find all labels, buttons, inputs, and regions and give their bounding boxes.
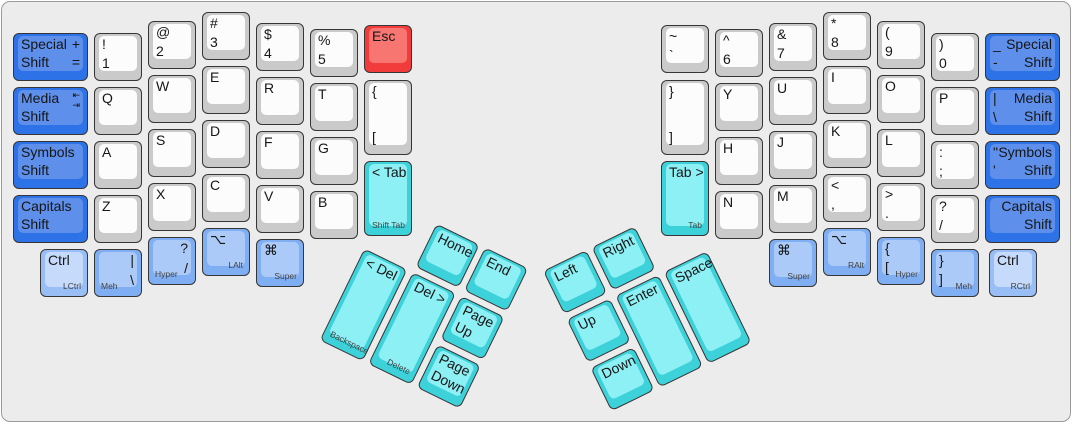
key-j[interactable]: J bbox=[769, 131, 817, 179]
hyper-right[interactable]: {[Hyper bbox=[877, 237, 925, 285]
key-cap: $4 bbox=[261, 26, 299, 61]
key-cap: Special Shift+ = bbox=[18, 36, 83, 71]
key-legend: Capitals Shift bbox=[1001, 198, 1052, 233]
key-legend: F bbox=[264, 134, 273, 152]
key-legend: V bbox=[264, 188, 273, 206]
key-legend: Backspace bbox=[328, 329, 370, 357]
key-legend: H bbox=[723, 140, 733, 158]
key-cap: {[Hyper bbox=[882, 240, 920, 275]
key-cap: %5 bbox=[315, 32, 353, 67]
key-legend: > bbox=[885, 186, 893, 204]
key-legend: Media Shift bbox=[1014, 90, 1052, 125]
key-4[interactable]: $4 bbox=[256, 23, 304, 71]
key-cap: Right bbox=[597, 231, 646, 279]
key-legend: Super bbox=[787, 271, 810, 282]
key-cap: E bbox=[207, 69, 245, 104]
key-k[interactable]: K bbox=[823, 120, 871, 168]
key-cap: J bbox=[774, 134, 812, 169]
key-legend: Tab > bbox=[669, 164, 704, 182]
key-legend: } bbox=[939, 252, 944, 270]
key-legend: C bbox=[210, 177, 220, 195]
key-legend: Up bbox=[575, 311, 599, 335]
key-legend: + = bbox=[72, 36, 80, 71]
key-cap: B bbox=[315, 194, 353, 229]
key-legend: < bbox=[831, 177, 839, 195]
key-legend: Delete bbox=[385, 357, 412, 377]
key-legend: Ctrl bbox=[48, 252, 70, 270]
key-cap: *8 bbox=[828, 15, 866, 50]
key-legend: ~ bbox=[669, 28, 677, 46]
key-legend: [ bbox=[885, 259, 889, 277]
key-9[interactable]: (9 bbox=[877, 21, 925, 69]
keyboard-panel: HomeEnd< DelBackspaceDel >DeletePage UpP… bbox=[1, 1, 1071, 422]
key-legend: Home bbox=[435, 230, 476, 262]
key-legend: 5 bbox=[318, 51, 326, 69]
key-cap: G bbox=[315, 140, 353, 175]
rbrace-key[interactable]: }] bbox=[661, 80, 709, 155]
key-legend: Ctrl bbox=[997, 252, 1019, 270]
key-cap: W bbox=[153, 78, 191, 113]
key-legend: W bbox=[156, 78, 169, 96]
key-legend: { bbox=[372, 83, 377, 101]
key-legend: [ bbox=[372, 129, 376, 147]
key-cap: ⌥RAlt bbox=[828, 231, 866, 266]
key-legend: RAlt bbox=[848, 260, 864, 271]
key-a[interactable]: A bbox=[94, 141, 142, 189]
key-legend: G bbox=[318, 140, 329, 158]
key-legend: Page Up bbox=[452, 302, 497, 348]
key-legend: / bbox=[184, 260, 188, 278]
key-legend: # bbox=[210, 15, 218, 33]
key-legend: O bbox=[885, 78, 896, 96]
key-legend: : bbox=[939, 144, 943, 162]
key-6[interactable]: ^6 bbox=[715, 29, 763, 77]
key-legend: Esc bbox=[372, 28, 395, 46]
key-0[interactable]: )0 bbox=[931, 33, 979, 81]
key-semicolon[interactable]: :; bbox=[931, 141, 979, 189]
key-legend: A bbox=[102, 144, 111, 162]
key-legend: , bbox=[831, 196, 835, 214]
key-legend: 0 bbox=[939, 55, 947, 73]
key-cap: I bbox=[828, 69, 866, 104]
key-tilde[interactable]: ~` bbox=[661, 25, 709, 73]
special-shift-right[interactable]: _ -Special Shift bbox=[985, 33, 1060, 81]
super-right[interactable]: ⌘Super bbox=[769, 239, 817, 287]
key-legend: { bbox=[885, 240, 890, 258]
key-cap: D bbox=[207, 123, 245, 158]
key-e[interactable]: E bbox=[202, 66, 250, 114]
key-y[interactable]: Y bbox=[715, 83, 763, 131]
key-m[interactable]: M bbox=[769, 185, 817, 233]
key-legend: ( bbox=[885, 24, 890, 42]
key-cap: H bbox=[720, 140, 758, 175]
key-cap: R bbox=[261, 80, 299, 115]
key-cap: ~` bbox=[666, 28, 704, 63]
key-cap: ?/ bbox=[936, 198, 974, 233]
key-legend: & bbox=[777, 26, 786, 44]
key-cap: :; bbox=[936, 144, 974, 179]
key-cap: M bbox=[774, 188, 812, 223]
key-7[interactable]: &7 bbox=[769, 23, 817, 71]
key-cap: C bbox=[207, 177, 245, 212]
lbrace-key[interactable]: {[ bbox=[364, 80, 412, 155]
key-i[interactable]: I bbox=[823, 66, 871, 114]
key-h[interactable]: H bbox=[715, 137, 763, 185]
key-cap: Capitals Shift bbox=[18, 198, 83, 233]
key-legend: 2 bbox=[156, 43, 164, 61]
key-cap: )0 bbox=[936, 36, 974, 71]
key-legend: } bbox=[669, 83, 674, 101]
esc-key[interactable]: Esc bbox=[364, 25, 412, 73]
key-c[interactable]: C bbox=[202, 174, 250, 222]
key-legend: Right bbox=[600, 232, 637, 262]
key-legend: $ bbox=[264, 26, 272, 44]
key-legend: ? bbox=[180, 240, 188, 258]
key-legend: / bbox=[939, 217, 943, 235]
key-cap: K bbox=[828, 123, 866, 158]
ctrl-left[interactable]: CtrlLCtrl bbox=[40, 249, 88, 297]
key-cap: U bbox=[774, 80, 812, 115]
key-legend: Q bbox=[102, 90, 113, 108]
key-l[interactable]: L bbox=[877, 129, 925, 177]
key-legend: Symbols Shift bbox=[998, 144, 1052, 179]
key-cap: Page Down bbox=[426, 349, 475, 397]
key-cap: Esc bbox=[369, 28, 407, 63]
keyboard-layout: HomeEnd< DelBackspaceDel >DeletePage UpP… bbox=[0, 0, 1073, 424]
key-legend: @ bbox=[156, 24, 170, 42]
key-cap: Symbols Shift bbox=[18, 144, 83, 179]
key-legend: ! bbox=[102, 36, 106, 54]
key-legend: ? bbox=[939, 198, 947, 216]
key-legend: E bbox=[210, 69, 219, 87]
key-legend: L bbox=[885, 132, 893, 150]
capitals-shift-right[interactable]: Capitals Shift bbox=[985, 195, 1060, 243]
key-legend: Special Shift bbox=[1006, 36, 1052, 71]
key-legend: Super bbox=[274, 271, 297, 282]
key-cap: Y bbox=[720, 86, 758, 121]
key-legend: \ bbox=[993, 109, 997, 127]
ctrl-right[interactable]: CtrlRCtrl bbox=[989, 249, 1037, 297]
key-legend: K bbox=[831, 123, 840, 141]
key-legend: R bbox=[264, 80, 274, 98]
key-legend: M bbox=[777, 188, 789, 206]
key-slash[interactable]: ?/ bbox=[931, 195, 979, 243]
key-s[interactable]: S bbox=[148, 129, 196, 177]
key-3[interactable]: #3 bbox=[202, 12, 250, 60]
key-legend: Z bbox=[102, 198, 111, 216]
key-legend: P bbox=[939, 90, 948, 108]
key-cap: }] bbox=[666, 83, 704, 145]
key-legend: Meh bbox=[955, 281, 972, 292]
key-legend: RCtrl bbox=[1011, 281, 1030, 292]
key-t[interactable]: T bbox=[310, 83, 358, 131]
key-cap: V bbox=[261, 188, 299, 223]
key-legend: Hyper bbox=[895, 269, 918, 280]
key-legend: ⌥ bbox=[210, 231, 226, 249]
key-cap: < TabShift Tab bbox=[369, 164, 407, 226]
key-legend: Hyper bbox=[155, 269, 178, 280]
key-cap: |\Meh bbox=[99, 252, 137, 287]
key-legend: Symbols Shift bbox=[21, 144, 75, 179]
key-legend: Space bbox=[672, 254, 715, 287]
key-legend: ; bbox=[939, 163, 943, 181]
key-cap: " 'Symbols Shift bbox=[990, 144, 1055, 179]
key-legend: LCtrl bbox=[63, 281, 81, 292]
key-cap: ⌘Super bbox=[774, 242, 812, 277]
key-cap: <, bbox=[828, 177, 866, 212]
symbols-shift-right[interactable]: " 'Symbols Shift bbox=[985, 141, 1060, 189]
lalt[interactable]: ⌥LAlt bbox=[202, 228, 250, 276]
key-legend: Tab bbox=[688, 220, 702, 231]
key-cap: ⌘Super bbox=[261, 242, 299, 277]
key-legend: ⌘ bbox=[777, 242, 791, 260]
key-1[interactable]: !1 bbox=[94, 33, 142, 81]
key-cap: F bbox=[261, 134, 299, 169]
tab-left[interactable]: < TabShift Tab bbox=[364, 161, 412, 236]
key-f[interactable]: F bbox=[256, 131, 304, 179]
key-cap: Capitals Shift bbox=[990, 198, 1055, 233]
key-legend: . bbox=[885, 205, 889, 223]
key-cap: X bbox=[153, 186, 191, 221]
key-cap: Z bbox=[99, 198, 137, 233]
key-legend: I bbox=[831, 69, 835, 87]
key-legend: ⌥ bbox=[831, 231, 847, 249]
key-cap: |Media Shift\ bbox=[990, 90, 1055, 125]
key-8[interactable]: *8 bbox=[823, 12, 871, 60]
key-cap: Media Shift⇤ ⇥ bbox=[18, 90, 83, 125]
key-cap: _ -Special Shift bbox=[990, 36, 1055, 71]
special-shift-left[interactable]: Special Shift+ = bbox=[13, 33, 88, 81]
key-cap: Left bbox=[549, 255, 598, 303]
key-cap: A bbox=[99, 144, 137, 179]
super-left[interactable]: ⌘Super bbox=[256, 239, 304, 287]
key-legend: ⇤ ⇥ bbox=[72, 90, 80, 111]
key-cap: ⌥LAlt bbox=[207, 231, 245, 266]
key-legend: 1 bbox=[102, 55, 110, 73]
key-cap: Down bbox=[596, 352, 645, 400]
key-legend: 3 bbox=[210, 34, 218, 52]
key-legend: " ' bbox=[993, 144, 998, 179]
key-legend: ⌘ bbox=[264, 242, 278, 260]
key-legend: Del > bbox=[411, 278, 448, 308]
key-x[interactable]: X bbox=[148, 183, 196, 231]
media-shift-right[interactable]: |Media Shift\ bbox=[985, 87, 1060, 135]
key-cap: !1 bbox=[99, 36, 137, 71]
key-legend: Y bbox=[723, 86, 732, 104]
key-legend: % bbox=[318, 32, 330, 50]
key-legend: Capitals Shift bbox=[21, 198, 72, 233]
key-g[interactable]: G bbox=[310, 137, 358, 185]
key-2[interactable]: @2 bbox=[148, 21, 196, 69]
key-cap: O bbox=[882, 78, 920, 113]
meh-left[interactable]: |\Meh bbox=[94, 249, 142, 297]
key-legend: _ - bbox=[993, 36, 1001, 71]
key-cap: {[ bbox=[369, 83, 407, 145]
key-cap: (9 bbox=[882, 24, 920, 59]
key-legend: Down bbox=[599, 352, 639, 383]
key-cap: T bbox=[315, 86, 353, 121]
key-cap: P bbox=[936, 90, 974, 125]
meh-right[interactable]: }]Meh bbox=[931, 249, 979, 297]
key-legend: ) bbox=[939, 36, 944, 54]
key-legend: Special Shift bbox=[21, 36, 67, 71]
key-legend: Page Down bbox=[428, 351, 476, 398]
key-period[interactable]: >. bbox=[877, 183, 925, 231]
key-u[interactable]: U bbox=[769, 77, 817, 125]
key-legend: Left bbox=[552, 260, 581, 286]
key-legend: End bbox=[483, 254, 513, 281]
key-legend: < Del bbox=[363, 255, 400, 285]
key-legend: * bbox=[831, 15, 836, 33]
key-q[interactable]: Q bbox=[94, 87, 142, 135]
key-legend: N bbox=[723, 194, 733, 212]
key-cap: ?/Hyper bbox=[153, 240, 191, 275]
key-legend: T bbox=[318, 86, 327, 104]
key-legend: 8 bbox=[831, 34, 839, 52]
key-cap: N bbox=[720, 194, 758, 229]
key-comma[interactable]: <, bbox=[823, 174, 871, 222]
key-legend: B bbox=[318, 194, 327, 212]
key-cap: CtrlRCtrl bbox=[994, 252, 1032, 287]
key-cap: Up bbox=[572, 303, 621, 351]
key-legend: 7 bbox=[777, 45, 785, 63]
key-legend: D bbox=[210, 123, 220, 141]
key-cap: &7 bbox=[774, 26, 812, 61]
key-legend: 9 bbox=[885, 43, 893, 61]
key-cap: @2 bbox=[153, 24, 191, 59]
ralt[interactable]: ⌥RAlt bbox=[823, 228, 871, 276]
key-legend: Media Shift bbox=[21, 90, 59, 125]
key-legend: U bbox=[777, 80, 787, 98]
key-cap: S bbox=[153, 132, 191, 167]
key-cap: }]Meh bbox=[936, 252, 974, 287]
key-legend: ^ bbox=[723, 32, 730, 50]
symbols-shift-left[interactable]: Symbols Shift bbox=[13, 141, 88, 189]
key-d[interactable]: D bbox=[202, 120, 250, 168]
key-v[interactable]: V bbox=[256, 185, 304, 233]
key-legend: ] bbox=[939, 271, 943, 289]
key-cap: >. bbox=[882, 186, 920, 221]
key-cap: Q bbox=[99, 90, 137, 125]
key-legend: ] bbox=[669, 129, 673, 147]
key-5[interactable]: %5 bbox=[310, 29, 358, 77]
key-legend: < Tab bbox=[372, 164, 406, 182]
key-p[interactable]: P bbox=[931, 87, 979, 135]
key-legend: Meh bbox=[101, 281, 118, 292]
key-legend: \ bbox=[130, 272, 134, 290]
key-legend: S bbox=[156, 132, 165, 150]
key-cap: End bbox=[473, 252, 522, 300]
key-legend: LAlt bbox=[228, 260, 243, 271]
key-legend: | bbox=[993, 90, 997, 108]
tab-right[interactable]: Tab >Tab bbox=[661, 161, 709, 236]
key-cap: Tab >Tab bbox=[666, 164, 704, 226]
key-cap: Page Up bbox=[449, 301, 498, 349]
key-z[interactable]: Z bbox=[94, 195, 142, 243]
key-legend: 4 bbox=[264, 45, 272, 63]
key-cap: #3 bbox=[207, 15, 245, 50]
key-legend: ` bbox=[669, 47, 674, 65]
key-legend: 6 bbox=[723, 51, 731, 69]
media-shift-left[interactable]: Media Shift⇤ ⇥ bbox=[13, 87, 88, 135]
key-r[interactable]: R bbox=[256, 77, 304, 125]
key-legend: X bbox=[156, 186, 165, 204]
key-legend: J bbox=[777, 134, 784, 152]
key-cap: ^6 bbox=[720, 32, 758, 67]
key-b[interactable]: B bbox=[310, 191, 358, 239]
key-w[interactable]: W bbox=[148, 75, 196, 123]
key-cap: CtrlLCtrl bbox=[45, 252, 83, 287]
key-legend: Enter bbox=[624, 280, 662, 310]
hyper-left[interactable]: ?/Hyper bbox=[148, 237, 196, 285]
key-o[interactable]: O bbox=[877, 75, 925, 123]
key-legend: Shift Tab bbox=[372, 220, 405, 231]
key-n[interactable]: N bbox=[715, 191, 763, 239]
key-legend: | bbox=[130, 252, 134, 270]
key-cap: Home bbox=[424, 229, 473, 277]
capitals-shift-left[interactable]: Capitals Shift bbox=[13, 195, 88, 243]
key-cap: L bbox=[882, 132, 920, 167]
